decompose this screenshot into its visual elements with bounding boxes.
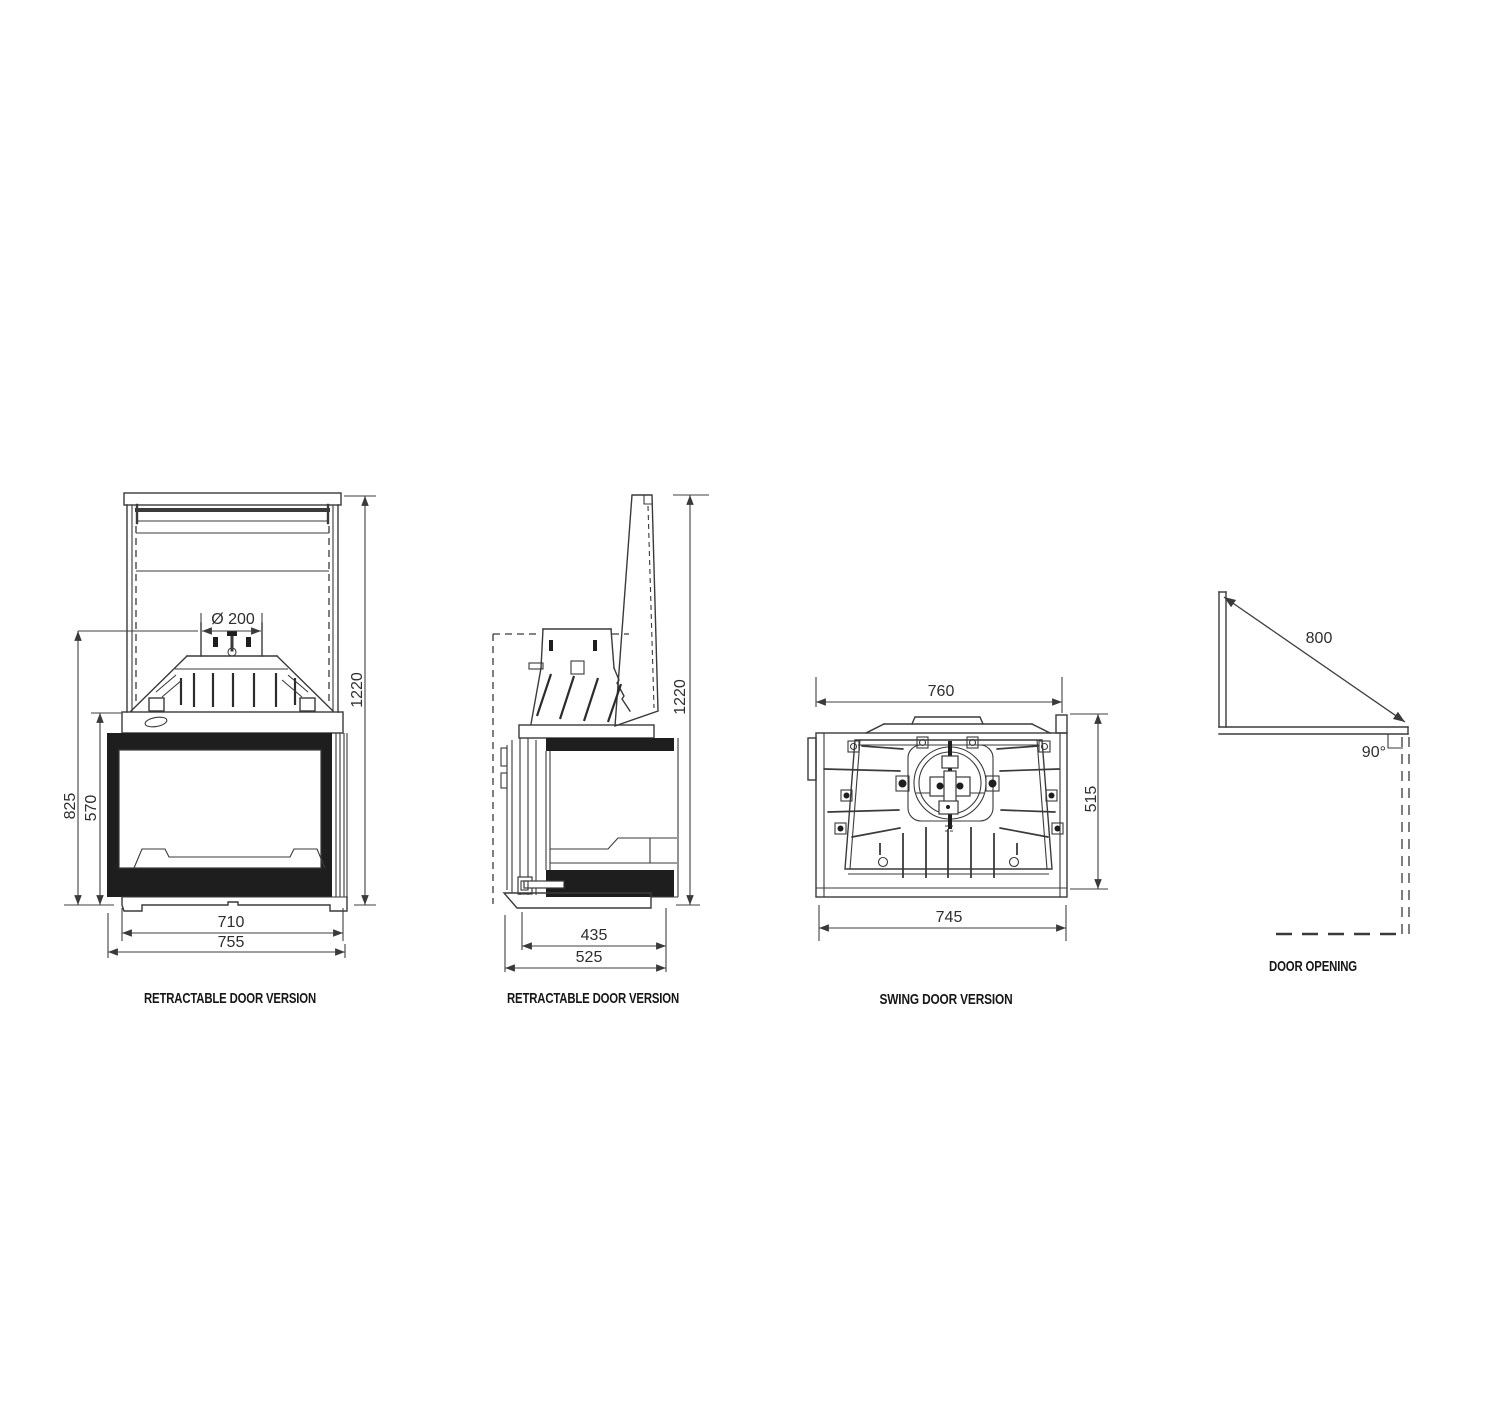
door-opening-view: 800 90° DOOR OPENING xyxy=(1219,592,1409,975)
front-dim-1220: 1220 xyxy=(349,672,366,708)
rear-body-outline xyxy=(808,715,1067,897)
side-hood-outline xyxy=(519,629,654,738)
rear-bottom-pins xyxy=(879,827,1019,878)
technical-drawing-page: Ø 200 825 570 1220 710 755 RETRACTABLE D… xyxy=(0,0,1500,1427)
side-dimensions: 1220 435 525 xyxy=(505,495,709,972)
rear-damper-mechanism xyxy=(896,737,999,831)
front-dim-570: 570 xyxy=(83,795,100,822)
front-dim-710: 710 xyxy=(218,914,245,931)
front-dim-flue: Ø 200 xyxy=(211,611,255,628)
door-opening-dim-800: 800 xyxy=(1306,630,1333,647)
side-dim-435: 435 xyxy=(581,927,608,944)
side-dim-525: 525 xyxy=(576,949,603,966)
fireplace-technical-drawing: Ø 200 825 570 1220 710 755 RETRACTABLE D… xyxy=(0,0,1500,1427)
front-dim-825: 825 xyxy=(62,793,79,820)
front-view-caption: RETRACTABLE DOOR VERSION xyxy=(144,990,316,1007)
rear-view: 760 515 745 SWING DOOR VERSION xyxy=(808,677,1108,1008)
rear-dim-760: 760 xyxy=(928,683,955,700)
rear-dim-515: 515 xyxy=(1083,786,1100,813)
front-view: Ø 200 825 570 1220 710 755 RETRACTABLE D… xyxy=(62,493,376,1007)
side-dim-1220: 1220 xyxy=(672,679,689,715)
side-firebox xyxy=(501,738,678,908)
rear-dim-745: 745 xyxy=(936,909,963,926)
side-view-caption: RETRACTABLE DOOR VERSION xyxy=(507,990,679,1007)
rear-view-caption: SWING DOOR VERSION xyxy=(880,991,1013,1008)
door-opening-dim-angle: 90° xyxy=(1362,744,1386,761)
side-view: 1220 435 525 RETRACTABLE DOOR VERSION xyxy=(493,495,709,1007)
front-dim-755: 755 xyxy=(218,934,245,951)
door-opening-caption: DOOR OPENING xyxy=(1269,958,1357,975)
front-door-frame xyxy=(107,733,347,911)
